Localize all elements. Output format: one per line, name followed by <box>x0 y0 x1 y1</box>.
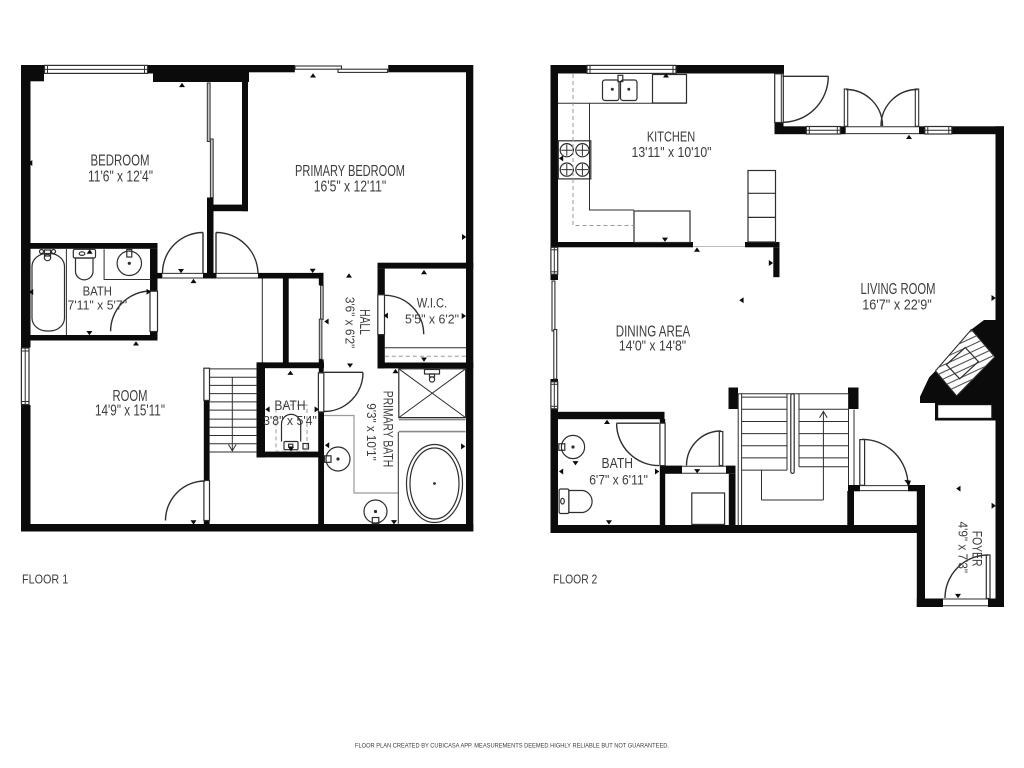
svg-text:16'5" x 12'11": 16'5" x 12'11" <box>314 179 387 196</box>
svg-text:4'9" x 7'3": 4'9" x 7'3" <box>956 522 971 574</box>
svg-text:3'8" x 5'4": 3'8" x 5'4" <box>263 413 317 428</box>
svg-text:BEDROOM: BEDROOM <box>91 153 150 170</box>
svg-text:6'7" x 6'11": 6'7" x 6'11" <box>589 471 648 487</box>
svg-text:BATH: BATH <box>602 456 634 472</box>
svg-text:14'9" x 15'11": 14'9" x 15'11" <box>95 403 165 420</box>
svg-text:FOYER: FOYER <box>970 531 986 567</box>
svg-text:BATH: BATH <box>274 397 305 413</box>
svg-text:3'6" x 6'2": 3'6" x 6'2" <box>342 297 357 349</box>
svg-text:PRIMARY BATH: PRIMARY BATH <box>381 391 397 467</box>
svg-text:LIVING ROOM: LIVING ROOM <box>861 281 936 298</box>
svg-text:13'11" x 10'10": 13'11" x 10'10" <box>632 144 712 161</box>
svg-text:7'11" x 5'7": 7'11" x 5'7" <box>68 299 128 313</box>
svg-text:9'3" x 10'1": 9'3" x 10'1" <box>364 403 379 461</box>
svg-text:FLOOR 1: FLOOR 1 <box>22 572 68 587</box>
svg-text:16'7" x 22'9": 16'7" x 22'9" <box>862 297 932 314</box>
svg-text:W.I.C.: W.I.C. <box>417 296 448 311</box>
svg-text:11'6" x 12'4": 11'6" x 12'4" <box>88 169 153 186</box>
svg-text:FLOOR PLAN CREATED BY CUBICASA: FLOOR PLAN CREATED BY CUBICASA APP. MEAS… <box>355 743 669 750</box>
svg-text:14'0" x 14'8": 14'0" x 14'8" <box>619 338 686 355</box>
svg-text:PRIMARY BEDROOM: PRIMARY BEDROOM <box>295 163 405 180</box>
svg-text:BATH: BATH <box>83 285 112 299</box>
svg-text:5'5" x 6'2": 5'5" x 6'2" <box>405 312 459 327</box>
svg-text:FLOOR 2: FLOOR 2 <box>553 572 597 587</box>
